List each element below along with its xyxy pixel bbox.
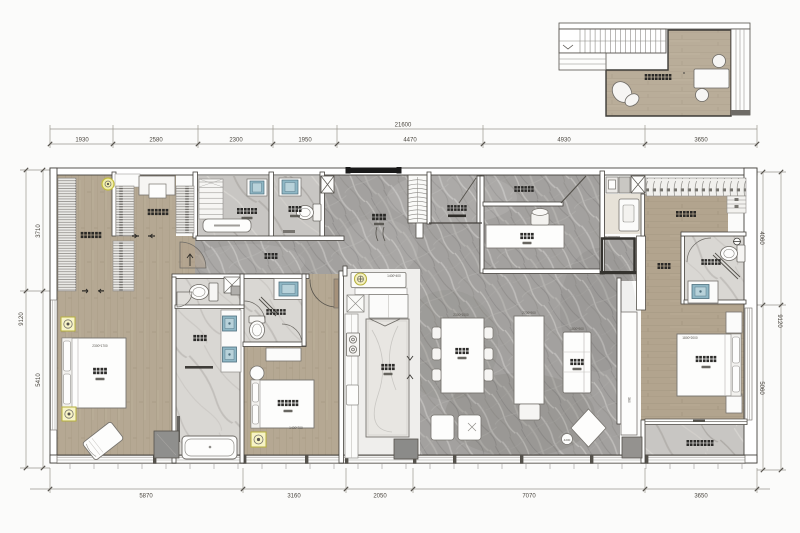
svg-text:3650: 3650 (694, 494, 708, 500)
svg-text:9120: 9120 (776, 314, 782, 328)
svg-text:3650: 3650 (694, 138, 708, 144)
svg-text:2300*1000: 2300*1000 (453, 313, 469, 317)
svg-text:5870: 5870 (139, 494, 153, 500)
svg-text:1400*400: 1400*400 (387, 274, 401, 278)
svg-text:5410: 5410 (36, 373, 42, 387)
svg-text:2050: 2050 (373, 494, 387, 500)
svg-text:5060: 5060 (758, 381, 764, 395)
svg-text:1400*700: 1400*700 (289, 426, 303, 430)
svg-text:1800*2000: 1800*2000 (682, 336, 698, 340)
svg-text:2300: 2300 (229, 138, 243, 144)
svg-text:21600: 21600 (395, 123, 412, 129)
svg-text:2700*900: 2700*900 (522, 311, 536, 315)
svg-text:4470: 4470 (403, 138, 417, 144)
svg-text:1930: 1930 (75, 138, 89, 144)
svg-text:3710: 3710 (36, 224, 42, 238)
svg-text:2300*1700: 2300*1700 (92, 344, 108, 348)
svg-text:9120: 9120 (19, 312, 25, 326)
svg-text:1950: 1950 (298, 138, 312, 144)
svg-text:1800*900: 1800*900 (570, 327, 584, 331)
svg-text:360: 360 (627, 397, 631, 403)
svg-text:3160: 3160 (287, 494, 301, 500)
svg-text:2580: 2580 (149, 138, 163, 144)
svg-text:7070: 7070 (522, 494, 536, 500)
svg-text:4200: 4200 (564, 438, 571, 442)
svg-text:4060: 4060 (758, 231, 764, 245)
svg-text:4930: 4930 (557, 138, 571, 144)
